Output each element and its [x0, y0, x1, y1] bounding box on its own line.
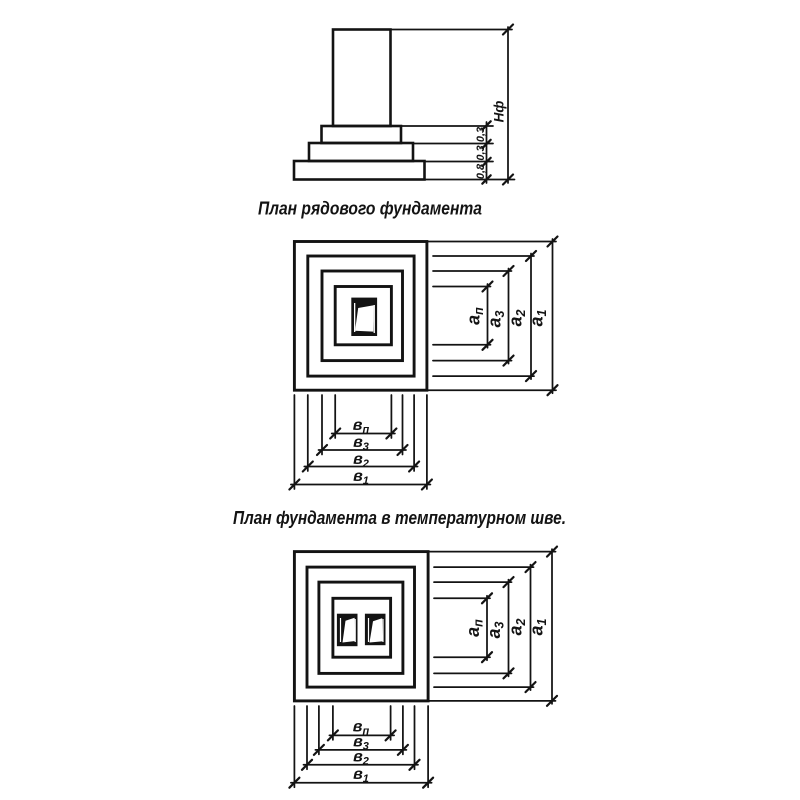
svg-text:0,3: 0,3: [475, 145, 487, 160]
svg-text:Нф: Нф: [492, 101, 507, 123]
svg-text:0,3: 0,3: [475, 127, 487, 142]
svg-text:План рядового фундамента: План рядового фундамента: [258, 199, 482, 219]
svg-text:0,8: 0,8: [475, 163, 487, 179]
svg-text:План фундамента в температурно: План фундамента в температурном шве.: [233, 508, 566, 528]
